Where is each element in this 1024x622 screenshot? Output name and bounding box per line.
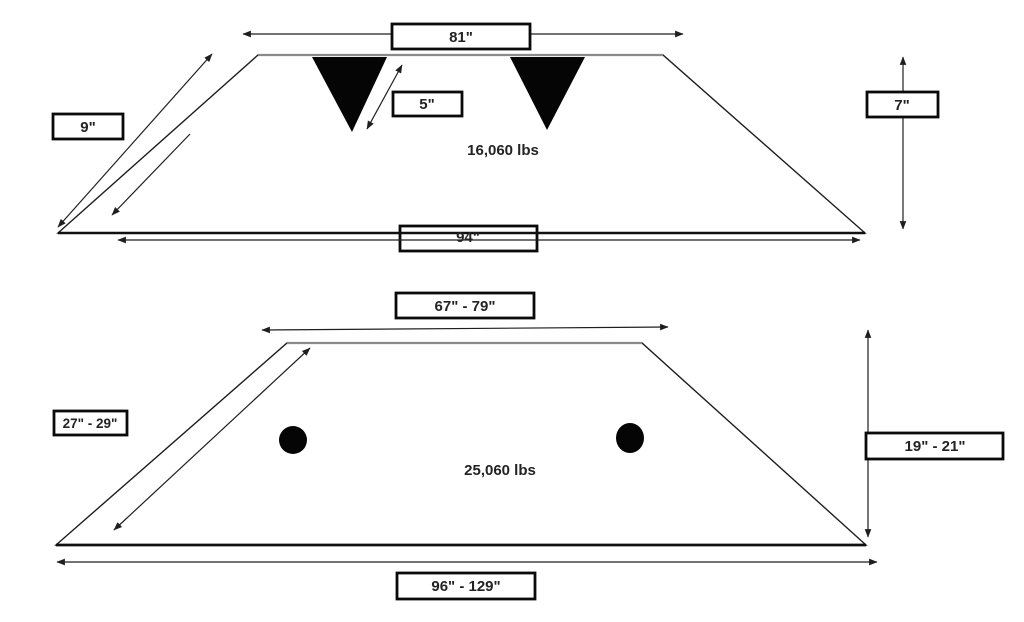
bottom-load-diagram: 67" - 79" 27" - 29" 25,060 lbs 19" - 21"… <box>54 293 1003 599</box>
top-width-dimension-arrow-bottom-diagram <box>262 327 668 330</box>
height-label-top-diagram: 7" <box>894 97 909 114</box>
lift-point-circle-left <box>279 426 307 454</box>
top-width-label-bottom-diagram: 67" - 79" <box>435 298 496 315</box>
bottom-width-label-bottom-diagram: 96" - 129" <box>431 578 500 595</box>
diagram-page: 81" 9" 5" 16,060 lbs 94" 7" 67" - 79" 27… <box>0 0 1024 622</box>
lift-point-circle-right <box>616 423 644 453</box>
weight-label-bottom-diagram: 25,060 lbs <box>464 462 536 479</box>
side-length-label-bottom-diagram: 27" - 29" <box>63 416 118 431</box>
height-label-bottom-diagram: 19" - 21" <box>905 438 966 455</box>
bottom-trapezoid-outline <box>56 343 866 545</box>
top-width-label-top-diagram: 81" <box>449 29 473 46</box>
pocket-depth-label: 5" <box>419 96 434 113</box>
bottom-width-label-top-diagram: 94" <box>456 229 480 246</box>
weight-label-top-diagram: 16,060 lbs <box>467 142 539 159</box>
side-length-label-top-diagram: 9" <box>80 119 95 136</box>
top-trapezoid-outline <box>58 55 865 233</box>
top-load-diagram: 81" 9" 5" 16,060 lbs 94" 7" <box>53 24 938 251</box>
load-dimension-diagram: 81" 9" 5" 16,060 lbs 94" 7" 67" - 79" 27… <box>0 0 1024 622</box>
